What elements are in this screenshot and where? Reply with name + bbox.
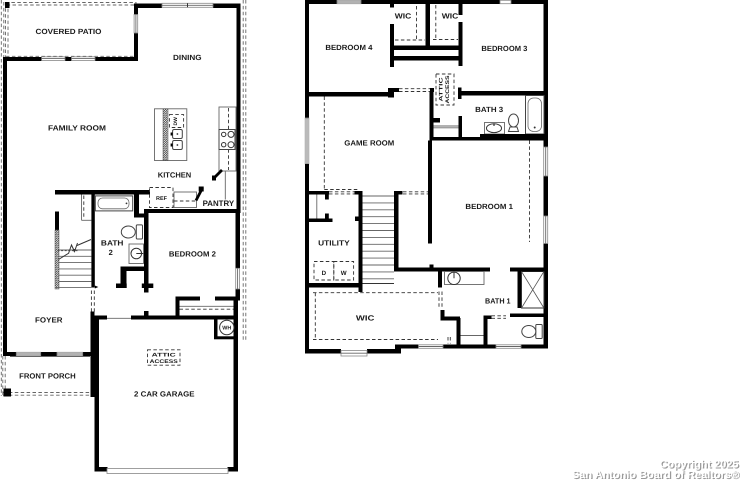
svg-text:BATH: BATH: [101, 238, 124, 247]
svg-text:FAMILY ROOM: FAMILY ROOM: [48, 124, 106, 133]
svg-text:ACCESS: ACCESS: [445, 75, 451, 104]
svg-text:COVERED PATIO: COVERED PATIO: [36, 27, 102, 36]
svg-text:San Antonio Board of Realtors®: San Antonio Board of Realtors®: [572, 469, 739, 480]
svg-text:WIC: WIC: [356, 313, 375, 322]
svg-text:GAME ROOM: GAME ROOM: [344, 139, 394, 148]
svg-text:WIC: WIC: [395, 11, 412, 20]
svg-text:DINING: DINING: [173, 53, 202, 62]
svg-text:BEDROOM 1: BEDROOM 1: [465, 202, 513, 211]
svg-text:REF: REF: [156, 196, 168, 202]
svg-text:UTILITY: UTILITY: [318, 238, 350, 247]
svg-text:FRONT PORCH: FRONT PORCH: [19, 371, 76, 380]
svg-text:FOYER: FOYER: [35, 315, 63, 324]
svg-text:D: D: [322, 270, 327, 277]
svg-text:BEDROOM 2: BEDROOM 2: [169, 250, 216, 259]
svg-text:2 CAR GARAGE: 2 CAR GARAGE: [134, 390, 195, 399]
svg-text:WIC: WIC: [442, 11, 459, 20]
svg-text:ACCESS: ACCESS: [150, 359, 179, 365]
svg-text:WH: WH: [222, 326, 231, 332]
svg-text:PANTRY: PANTRY: [203, 199, 235, 208]
svg-text:DW: DW: [173, 117, 179, 126]
svg-text:ATTIC: ATTIC: [439, 77, 445, 101]
svg-text:BATH 3: BATH 3: [475, 105, 503, 114]
svg-text:BEDROOM 4: BEDROOM 4: [325, 43, 373, 52]
svg-text:2: 2: [109, 248, 113, 257]
svg-text:BATH 1: BATH 1: [485, 296, 511, 305]
svg-text:W: W: [341, 270, 347, 277]
svg-text:BEDROOM 3: BEDROOM 3: [481, 44, 527, 53]
svg-text:ATTIC: ATTIC: [152, 353, 176, 359]
svg-text:KITCHEN: KITCHEN: [158, 170, 192, 179]
